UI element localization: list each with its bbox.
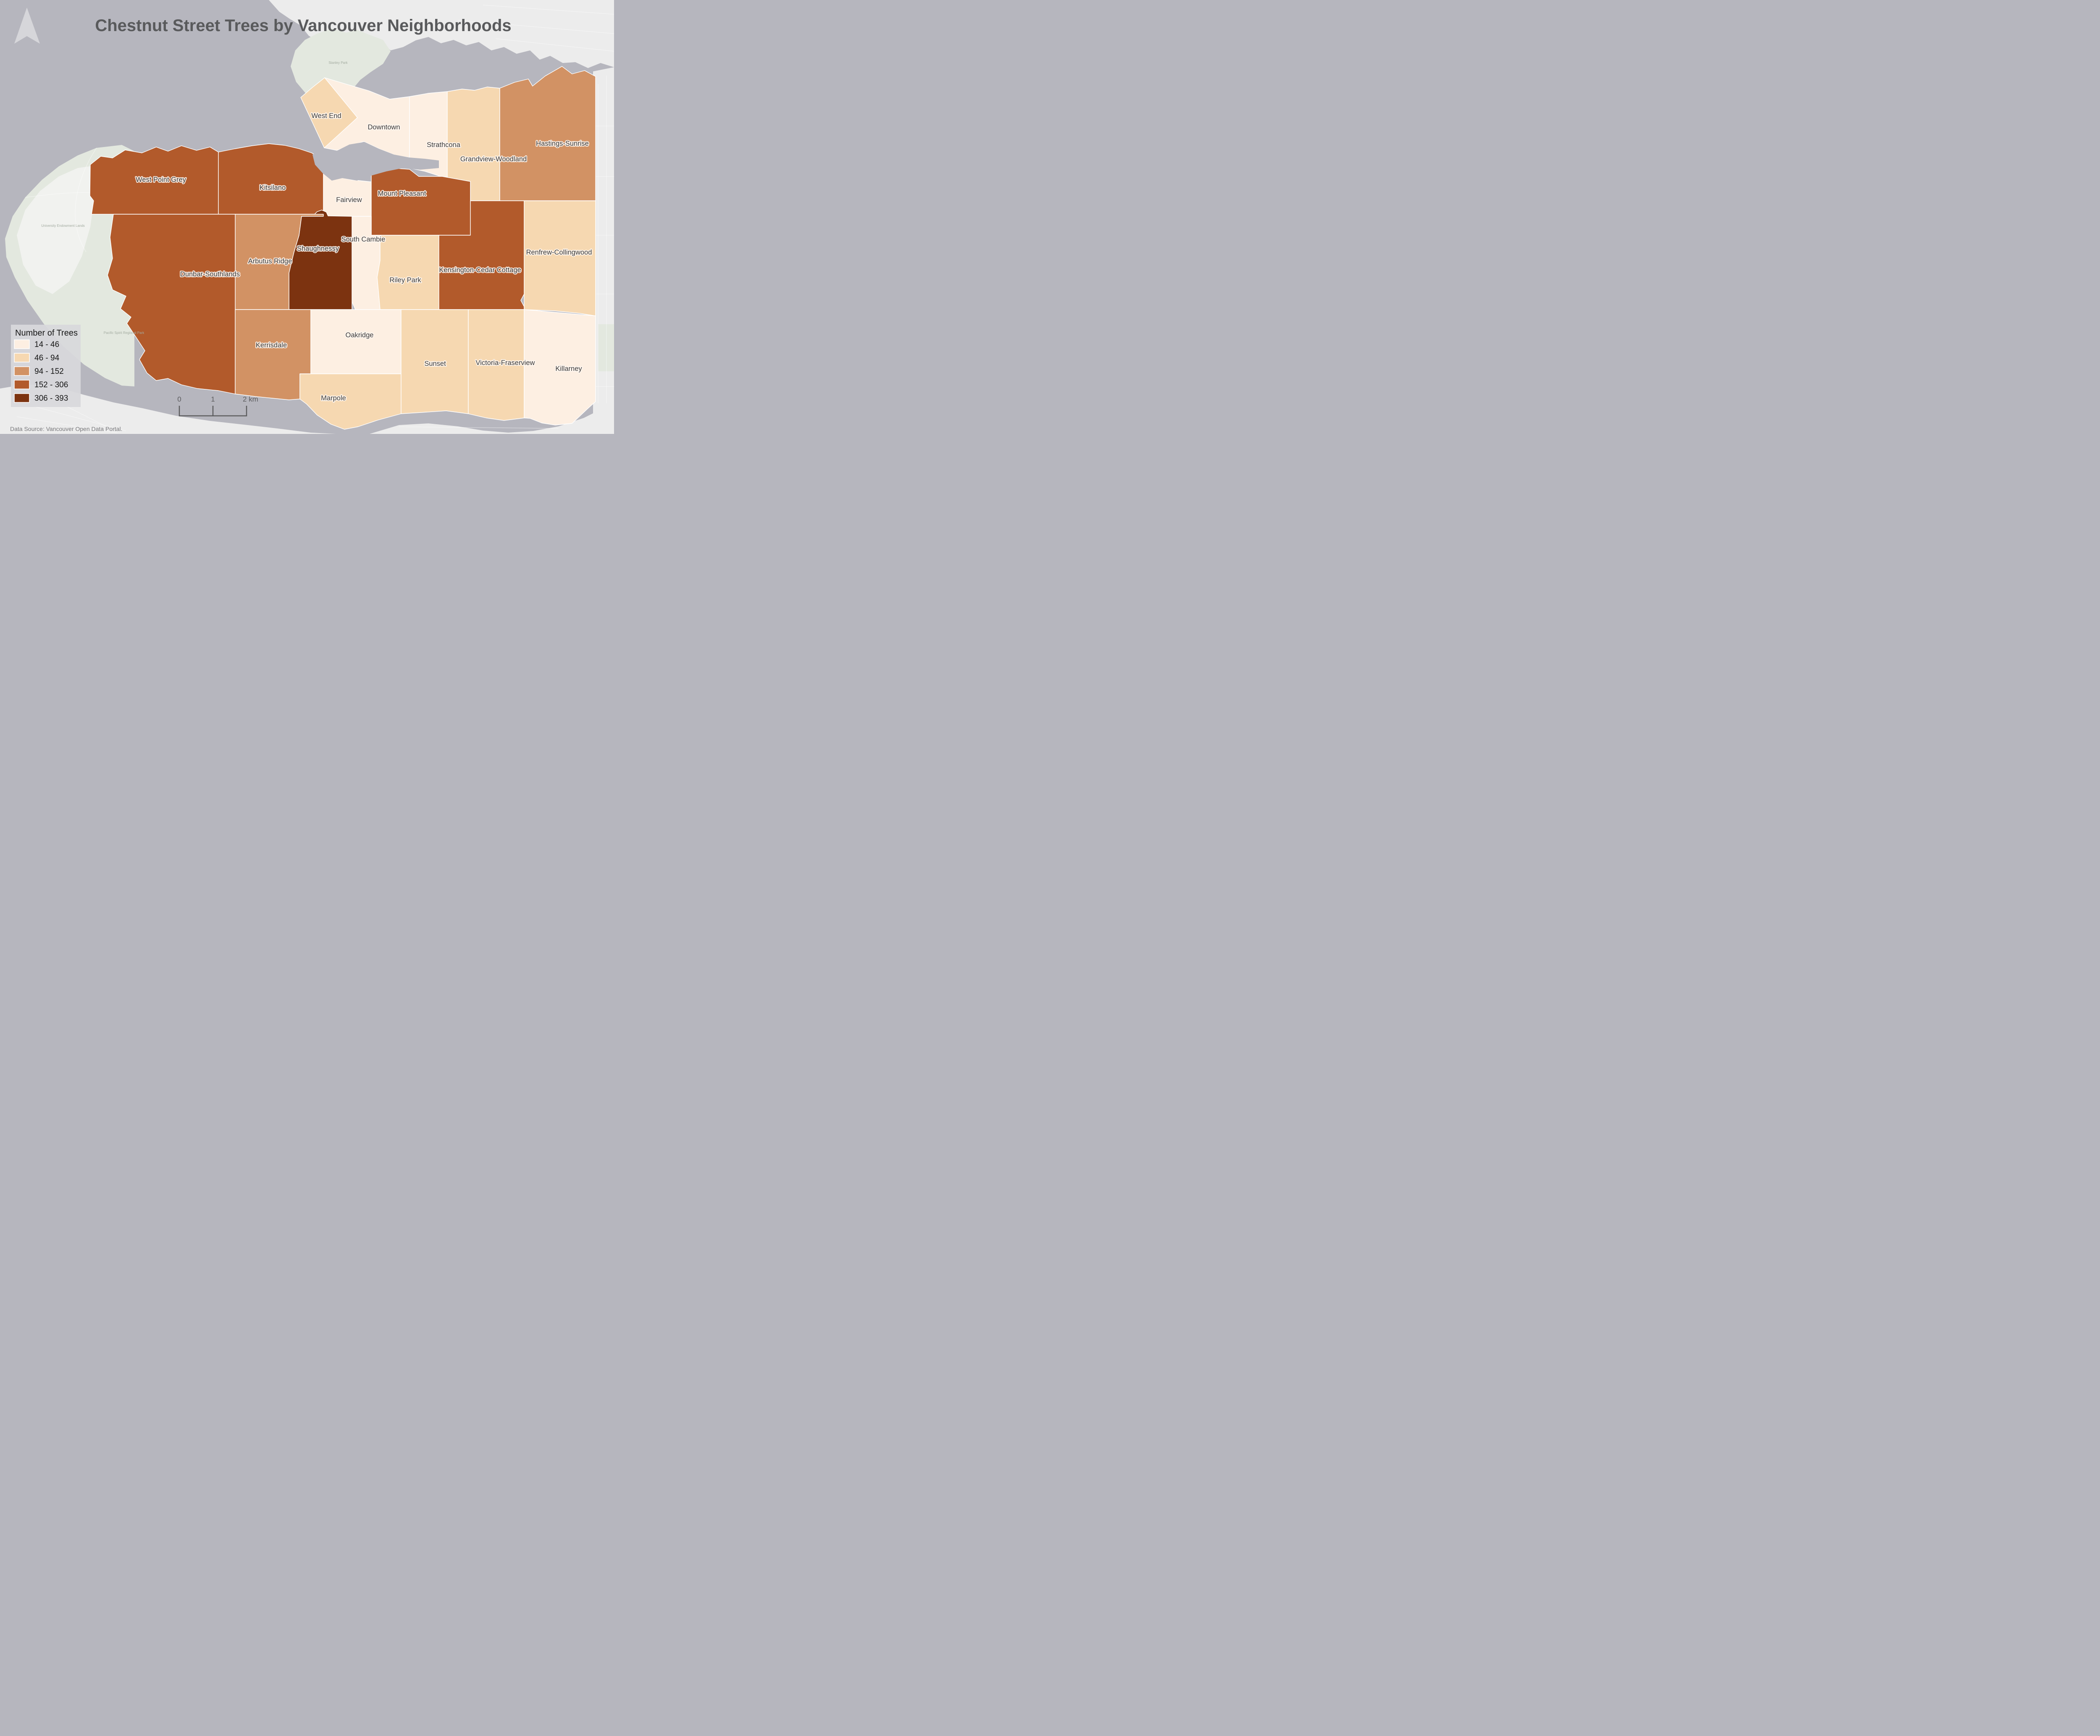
label-hastings-sunrise: Hastings-Sunrise [536,140,589,147]
legend-label-4: 306 - 393 [34,394,68,403]
label-kensington-cedar-cottage: Kensington-Cedar Cottage [439,266,521,274]
label-riley-park: Riley Park [389,276,421,284]
legend-swatch-0 [14,340,29,349]
region-kerrisdale [235,310,311,400]
data-source-attribution: Data Source: Vancouver Open Data Portal. [10,425,122,432]
basemap-label-uel: University Endowment Lands [41,224,85,228]
label-kerrisdale: Kerrisdale [256,341,287,349]
label-grandview-woodland: Grandview-Woodland [460,155,527,163]
legend-swatch-1 [14,353,29,362]
legend-swatch-3 [14,380,29,389]
label-killarney: Killarney [555,365,582,373]
region-oakridge [311,310,401,374]
label-mount-pleasant: Mount Pleasant [378,190,426,197]
label-arbutus-ridge: Arbutus Ridge [248,257,292,265]
basemap-label-stanley-park: Stanley Park [328,61,348,65]
legend-swatch-4 [14,394,29,402]
label-west-end: West End [311,112,341,120]
map-canvas: Stanley Park Pacific Spirit Regional Par… [0,0,614,434]
legend: Number of Trees 14 - 46 46 - 94 94 - 152… [11,325,81,407]
label-fairview: Fairview [336,196,362,204]
region-renfrew-collingwood [524,201,596,316]
scale-tick-1: 1 [211,395,215,403]
label-sunset: Sunset [424,360,446,368]
legend-label-3: 152 - 306 [34,381,68,389]
legend-label-1: 46 - 94 [34,354,60,362]
scale-tick-2: 2 km [243,395,258,403]
region-riley-park [377,235,439,310]
basemap-central-park [598,324,614,371]
legend-label-2: 94 - 152 [34,367,64,376]
label-south-cambie: South Cambie [341,236,386,243]
legend-title: Number of Trees [15,328,78,338]
choropleth-map: Stanley Park Pacific Spirit Regional Par… [0,0,614,434]
label-strathcona: Strathcona [427,141,461,149]
basemap-label-pacific-spirit: Pacific Spirit Regional Park [104,331,144,335]
label-west-point-grey: West Point Grey [136,176,186,184]
label-downtown: Downtown [367,123,400,131]
label-dunbar-southlands: Dunbar-Southlands [180,271,240,278]
label-renfrew-collingwood: Renfrew-Collingwood [526,249,592,256]
label-oakridge: Oakridge [346,331,374,339]
region-hastings-sunrise [500,66,596,201]
legend-label-0: 14 - 46 [34,340,59,349]
label-kitsilano: Kitsilano [260,184,286,192]
label-marpole: Marpole [321,394,346,402]
label-victoria-fraserview: Victoria-Fraserview [476,359,535,367]
region-kitsilano [218,144,323,214]
label-shaughnessy: Shaughnessy [297,245,339,252]
page-title: Chestnut Street Trees by Vancouver Neigh… [95,16,511,35]
legend-swatch-2 [14,367,29,376]
scale-tick-0: 0 [177,395,181,403]
